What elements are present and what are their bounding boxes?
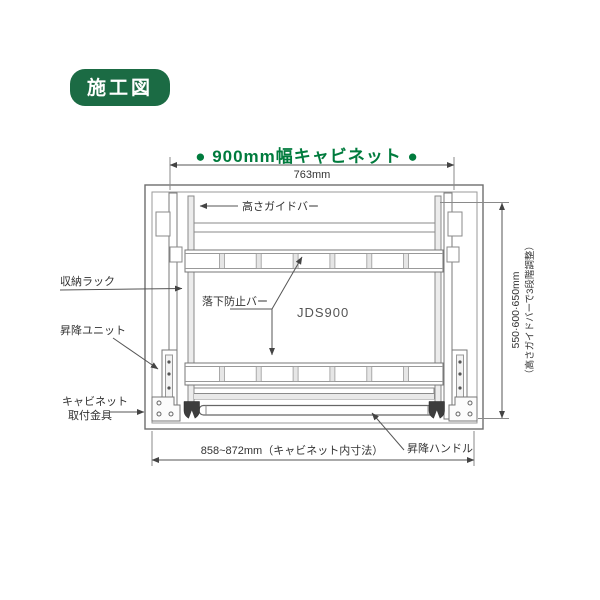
lower-rack-bar (185, 363, 443, 385)
upper-rack-bar (185, 250, 443, 272)
base-assembly (194, 388, 435, 415)
right-top-clip (448, 212, 462, 236)
page: 施工図 ● 900mm幅キャビネット ● (0, 0, 600, 600)
leader-storage-rack (60, 289, 182, 291)
dimension-height-note: （高さガイドバーで3段階調整） (524, 241, 536, 379)
label-mount-bracket-line2: 取付金具 (68, 408, 112, 422)
model-number: JDS900 (297, 305, 349, 320)
right-mid-clip (447, 247, 459, 262)
lift-handle-bar (199, 406, 435, 416)
left-top-clip (156, 212, 170, 236)
dimension-height-values: 550·600·650mm (510, 271, 522, 348)
label-storage-rack: 収納ラック (60, 275, 115, 288)
leader-lift-unit (113, 338, 158, 369)
label-lift-unit: 昇降ユニット (60, 323, 126, 337)
technical-drawing: 763mm 858~872mm（キャビネット内寸法） 550·600·650mm… (0, 0, 600, 600)
label-mount-bracket-line1: キャビネット (62, 395, 128, 408)
label-lift-handle: 昇降ハンドル (407, 441, 473, 455)
leader-fall-bar-down (230, 309, 272, 355)
dimension-bottom-width-label: 858~872mm（キャビネット内寸法） (201, 443, 383, 457)
dimension-top-width-label: 763mm (294, 169, 331, 181)
top-rail (194, 223, 435, 232)
label-height-guide-bar: 高さガイドバー (242, 199, 319, 213)
left-mid-clip (170, 247, 182, 262)
label-fall-prevention-bar: 落下防止バー (202, 294, 268, 308)
